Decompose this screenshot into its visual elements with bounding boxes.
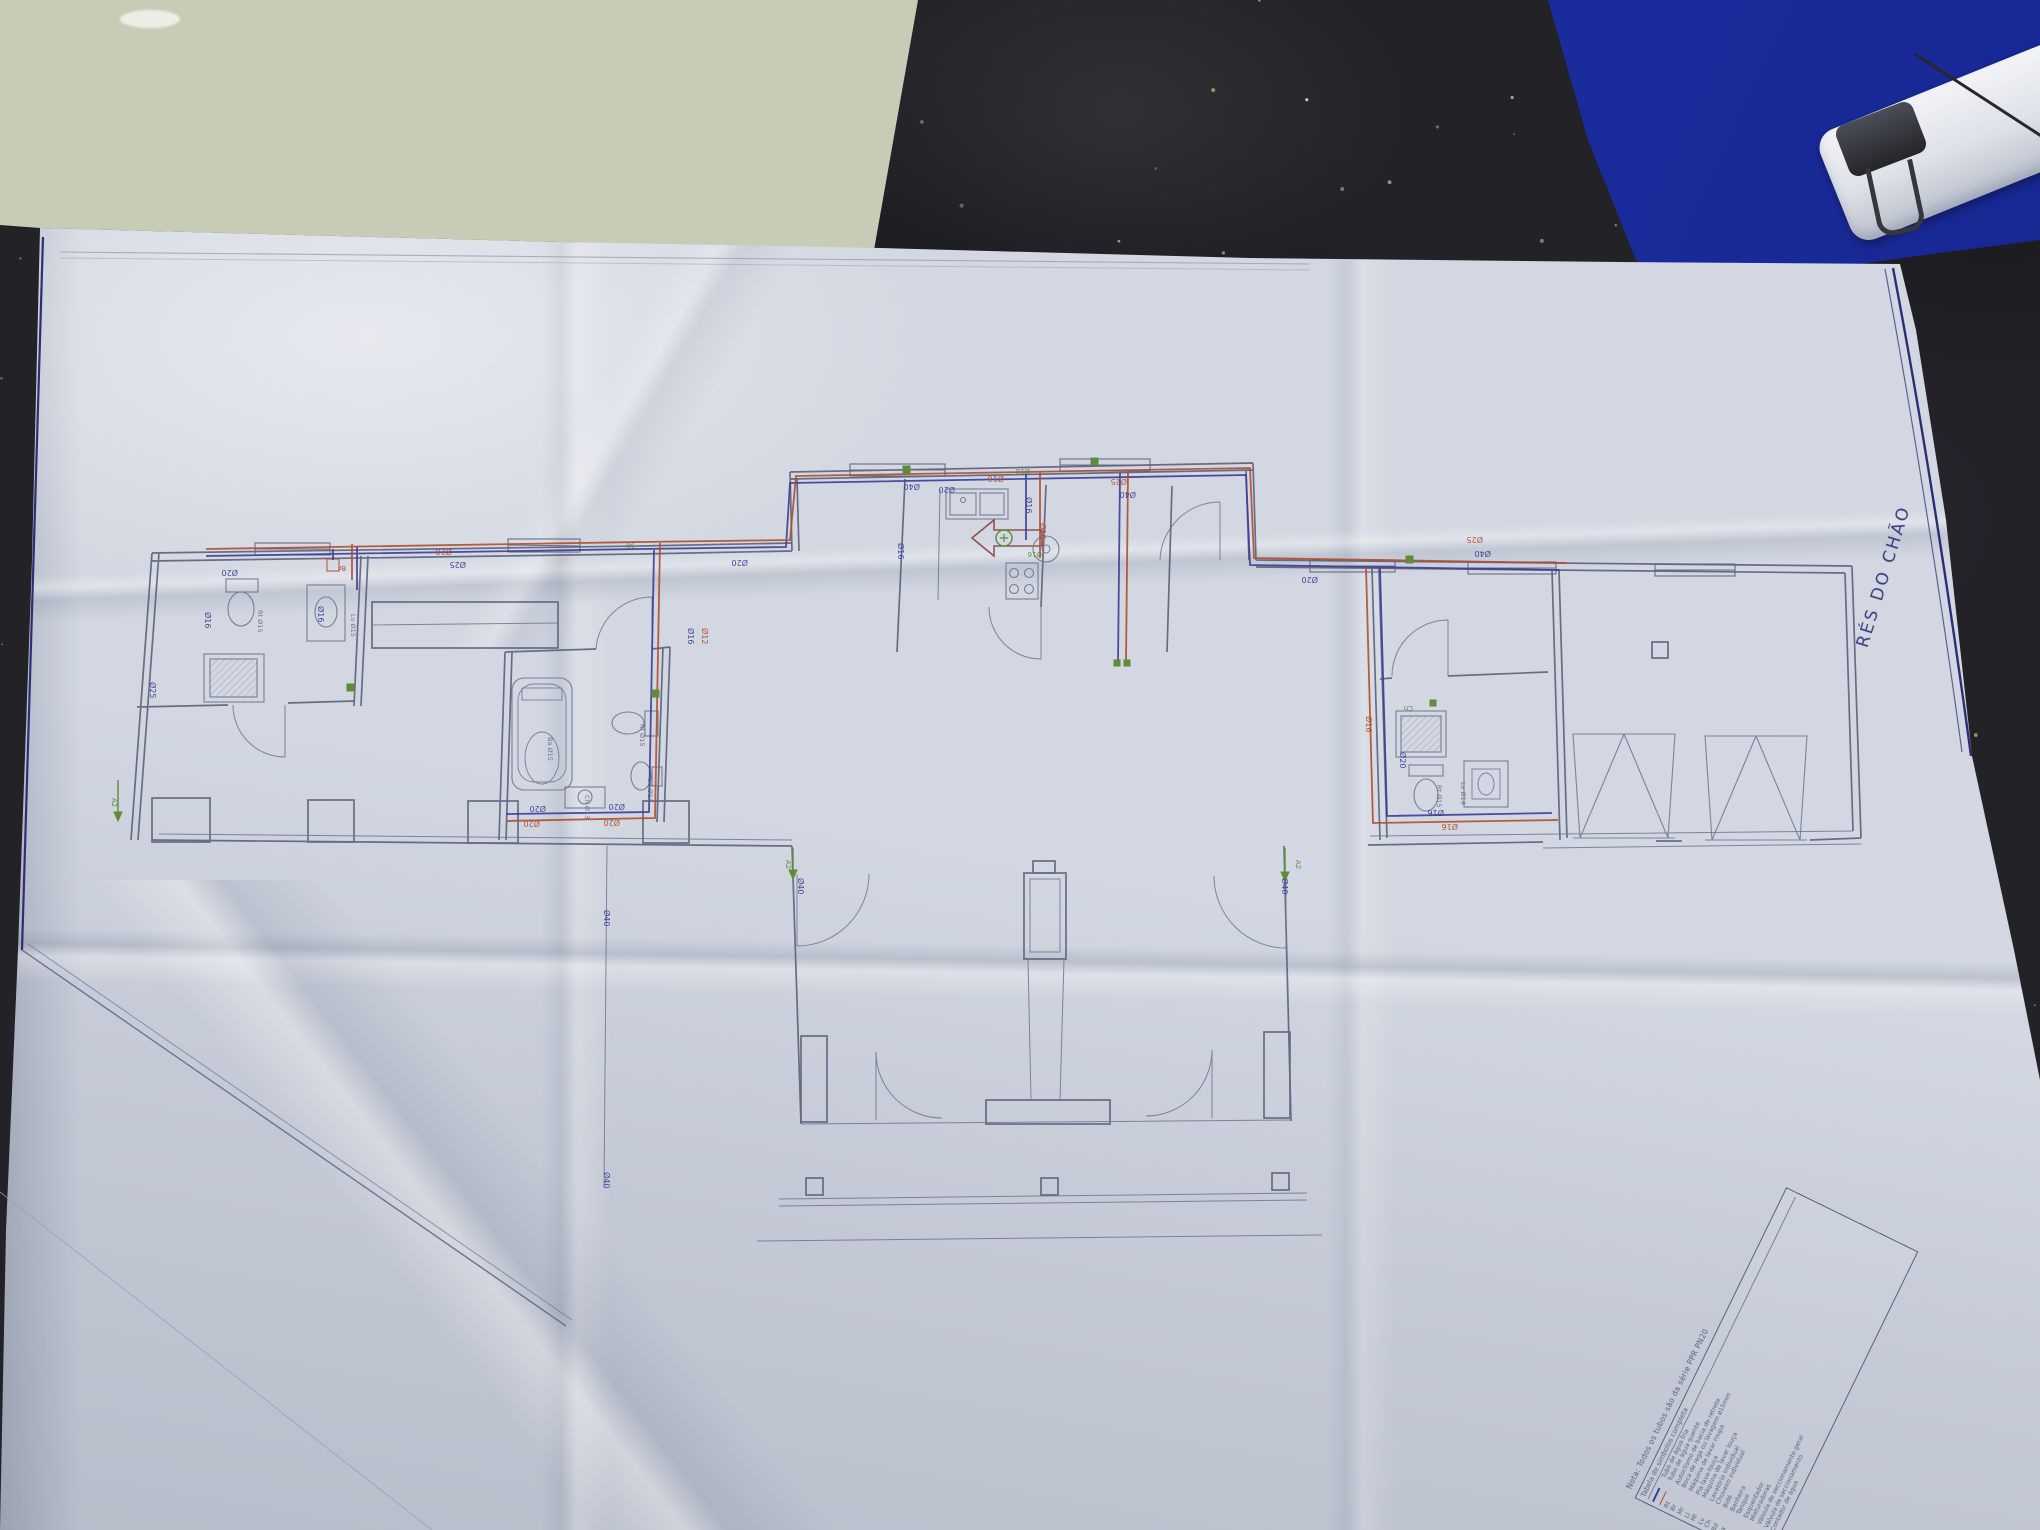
pipe-label: Ø16 [1428,808,1444,818]
pipe-label: Ø25 [1111,477,1127,487]
pipe-label: Lv Ø15 [349,614,357,637]
pipe-label: Ø16 [988,474,1004,484]
pipe-label: Ø16 [316,606,326,622]
pipe-label: Ø20 [222,568,238,578]
pipe-label: Ø16 [1038,523,1048,539]
pipe-label: Ba Ø15 [546,737,554,761]
doors-layer [233,502,1448,1120]
garage-door-symbols [1573,734,1807,840]
pipe-label: Ø20 [1398,752,1408,768]
pipe-label: A2 [784,860,792,869]
pipe-label: Ø40 [904,482,920,492]
pipe-label: Ml [626,541,634,549]
pipe-label: Ø16 [686,628,696,644]
pipe-label: Ø20 [530,804,546,814]
pipe-label: Ø16 [203,612,213,628]
photo-scene: Ø20Ø16Ø16BrØ25Rt Ø15Lv Ø15Ø20Ø25MlØ16Ø12… [0,0,2040,1530]
pipe-label: Ø20 [436,547,452,557]
pipe-label: Ø40 [796,878,806,894]
pipe-label: Ø25 [148,682,158,698]
pipe-label: Rt Ø15 [638,724,646,747]
pipe-label: Ch Ø13 [583,795,591,819]
pipe-label: Ø16 [1364,716,1374,732]
sheet-frame-lines [0,237,1971,1530]
pipe-label: Ø20 [609,802,625,812]
pipe-label: Rt Ø15 [1435,785,1443,808]
pipe-label: Ø16 [1024,497,1034,513]
pipe-label: Ø25 [450,560,466,570]
pipe-label: Ø40 [1280,878,1290,894]
pipe-label: Rt Ø15 [256,610,264,633]
pipe-label: Ø12 [700,628,710,644]
pipe-label: Ø20 [524,819,540,829]
pipe-label: Ø16 [1027,550,1042,558]
pipe-label: Ø40 [602,910,612,926]
pipe-label: Ø40 [1475,549,1491,559]
pipe-label: Ø25 [1467,535,1483,545]
pipe-label: Ø40 [602,1172,612,1188]
pipe-label: Br [338,564,346,572]
pipe-label: Ch [1404,704,1413,712]
pipe-label: Ø16 [1442,822,1458,832]
pipes-hot-layer [206,468,1566,823]
pipe-label: Ø40 [1120,490,1136,500]
fixtures-layer [204,489,1508,811]
pipe-label: Ø16 [1015,467,1030,475]
pipe-label: Bd Ø14 [646,778,654,802]
walls-layer [131,463,1861,1195]
valves-layer [114,458,1436,881]
pipes-cold-layer [206,473,1560,816]
pipe-label: Lv Ø14 [1459,782,1467,805]
pipe-label: A2 [110,798,118,807]
pipe-label: Ø20 [1302,575,1318,585]
pipe-label: Ø20 [939,485,955,495]
pipe-label: Ø16 [896,543,906,559]
pipe-label: Ø20 [604,818,620,828]
pipe-label: A2 [1294,860,1302,869]
pipe-label: Ø20 [732,558,748,568]
